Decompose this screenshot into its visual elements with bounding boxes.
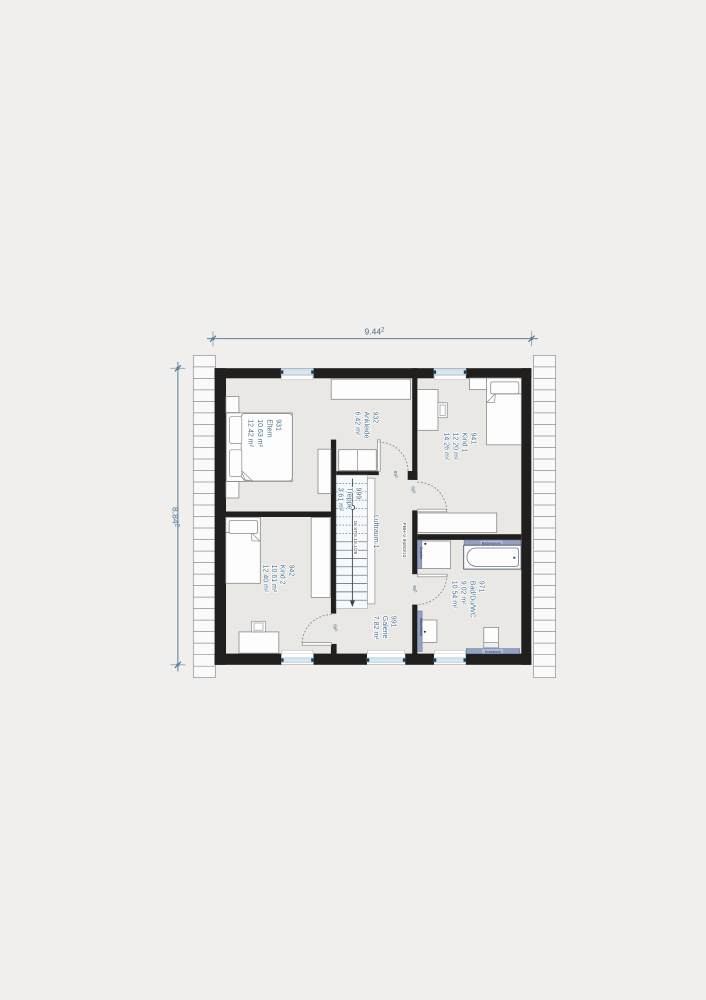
svg-text:FBH-V 94/80/10: FBH-V 94/80/10 <box>401 523 407 558</box>
svg-text:Badewanne: Badewanne <box>482 541 501 545</box>
svg-text:Waschtisch: Waschtisch <box>419 618 423 636</box>
svg-text:Luftraum 1: Luftraum 1 <box>372 515 379 549</box>
svg-text:Dusche: Dusche <box>419 547 423 559</box>
svg-text:16 STG 18,1/25: 16 STG 18,1/25 <box>352 521 358 555</box>
svg-text:Kniestock: Kniestock <box>485 650 501 654</box>
